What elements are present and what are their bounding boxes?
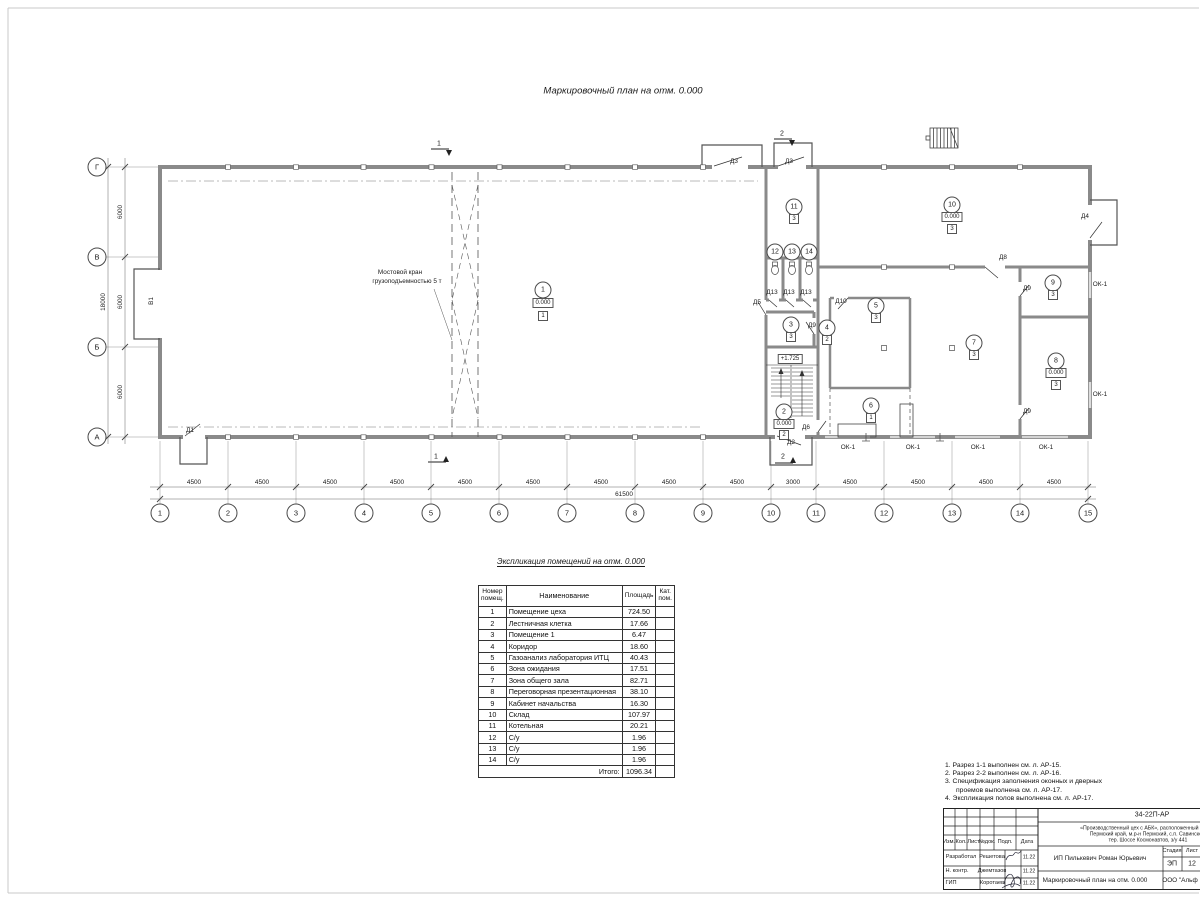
grid-axis-bubble: 2 (219, 504, 238, 523)
floor-type-mark: 1 (538, 311, 548, 321)
org-name: ООО "Альф (1162, 878, 1198, 884)
stamp-col-header: Лист (967, 840, 979, 846)
stamp-name: Решетова (979, 855, 1005, 861)
door-label: Д9 (1023, 286, 1031, 292)
doc-title: Маркировочный план на отм. 0.000 (1043, 878, 1148, 884)
stamp-col-header: Кол. (955, 840, 966, 846)
schedule-row: 6Зона ожидания17.51 (479, 663, 675, 674)
grid-axis-bubble: 1 (151, 504, 170, 523)
dim-label: 4500 (594, 480, 608, 486)
sheet-label: Лист (1186, 849, 1198, 855)
door-label: Д2 (787, 440, 795, 446)
room-number-bubble: 9 (1045, 275, 1062, 292)
grid-axis-bubble: 9 (694, 504, 713, 523)
dim-label: 4500 (187, 480, 201, 486)
schedule-total-row: Итого:1096.34 (479, 766, 675, 777)
schedule-row: 1Помещение цеха724.50 (479, 607, 675, 618)
dim-label: 4500 (458, 480, 472, 486)
note-line: проемов выполнена см. л. АР-17. (945, 787, 1180, 795)
schedule-row: 8Переговорная презентационная38.10 (479, 686, 675, 697)
grid-axis-bubble: А (88, 428, 107, 447)
stamp-role: ГИП (945, 881, 956, 887)
room-elevation: 0.000 (1045, 368, 1066, 378)
dim-label: 4500 (979, 480, 993, 486)
grid-axis-bubble: 8 (626, 504, 645, 523)
section-marks (428, 139, 796, 463)
stage-label: Стадия (1162, 849, 1181, 855)
schedule-row: 4Коридор18.60 (479, 641, 675, 652)
floor-type-mark: 3 (871, 313, 881, 323)
section-mark-label: 1 (434, 454, 438, 461)
room-number-bubble: 2 (776, 404, 793, 421)
crane-label: Мостовой кран (378, 270, 422, 276)
note-line: 2. Разрез 2-2 выполнен см. л. АР-16. (945, 770, 1180, 778)
room-elevation: 0.000 (532, 298, 553, 308)
grid-axis-bubble: 7 (558, 504, 577, 523)
room-number-bubble: 5 (868, 298, 885, 315)
stamp-name: Джемтазов (978, 869, 1007, 875)
ladder-symbol (926, 128, 958, 148)
door-label: Д10 (835, 299, 846, 305)
dim-total-label: 18000 (101, 293, 107, 311)
window-label: ОК-1 (1039, 445, 1053, 451)
grid-axis-bubble: Б (88, 338, 107, 357)
project-desc: тер. Шоссе Космонавтов, з/у 441 (1109, 838, 1188, 843)
schedule-row: 3Помещение 16.47 (479, 629, 675, 640)
door-label: Д3 (730, 159, 738, 165)
stamp-role: Н. контр. (945, 869, 968, 875)
section-mark-label: 2 (781, 454, 785, 461)
note-line: 4. Экспликация полов выполнена см. л. АР… (945, 795, 1180, 803)
stamp-date: 11.22 (1023, 881, 1036, 886)
stamp-date: 11.22 (1023, 855, 1036, 860)
window-label: ОК-1 (1093, 282, 1107, 288)
drawing-sheet: Маркировочный план на отм. 0.000 Эксплик… (0, 0, 1200, 900)
schedule-row: 10Склад107.97 (479, 709, 675, 720)
section-mark-label: 1 (437, 141, 441, 148)
door-label: Д9 (808, 323, 816, 329)
gate-label: В1 (149, 297, 155, 305)
room-elevation: 0.000 (941, 212, 962, 222)
stamp-col-header: Подп. (998, 840, 1013, 846)
window-label: ОК-1 (1093, 392, 1107, 398)
columns (226, 165, 1023, 440)
client-name: ИП Пилькевич Роман Юрьевич (1054, 856, 1147, 862)
dim-label: 4500 (662, 480, 676, 486)
room-number-bubble: 4 (819, 320, 836, 337)
stair-level-mark: +1.725 (778, 354, 803, 364)
dim-label: 6000 (118, 295, 124, 309)
door-label: Д13 (766, 290, 777, 296)
dim-label: 4500 (526, 480, 540, 486)
door-label: Д8 (999, 255, 1007, 261)
grid-axis-bubble: Г (88, 158, 107, 177)
grid-axis-bubble: 15 (1079, 504, 1098, 523)
schedule-title: Экспликация помещений на отм. 0.000 (497, 558, 645, 566)
sheet-value: 12 (1188, 861, 1196, 868)
crane-runway (434, 172, 478, 437)
room-number-bubble: 3 (783, 317, 800, 334)
schedule-header: Наименование (506, 586, 622, 607)
floor-type-mark: 3 (789, 214, 799, 224)
floor-type-mark: 3 (786, 332, 796, 342)
note-line: 1. Разрез 1-1 выполнен см. л. АР-15. (945, 762, 1180, 770)
dim-label: 6000 (118, 205, 124, 219)
dim-label: 6000 (118, 385, 124, 399)
floor-type-mark: 3 (1051, 380, 1061, 390)
stage-value: ЭП (1167, 861, 1177, 868)
schedule-row: 2Лестничная клетка17.66 (479, 618, 675, 629)
floor-type-mark: 2 (822, 335, 832, 345)
stamp-col-header: №док. (979, 840, 995, 846)
dim-label: 4500 (1047, 480, 1061, 486)
window-label: ОК-1 (841, 445, 855, 451)
dim-label: 4500 (390, 480, 404, 486)
door-label: Д1 (186, 428, 194, 434)
plan-title: Маркировочный план на отм. 0.000 (543, 86, 702, 96)
room-schedule-table: Номер помещ. Наименование Площадь Кат. п… (478, 585, 675, 778)
dim-label: 3000 (786, 480, 800, 486)
porches (134, 143, 1117, 465)
schedule-header: Кат. пом. (656, 586, 675, 607)
grid-axis-bubble: 13 (943, 504, 962, 523)
room-elevation: 0.000 (773, 419, 794, 429)
floor-type-mark: 1 (866, 413, 876, 423)
notes: 1. Разрез 1-1 выполнен см. л. АР-15. 2. … (945, 762, 1180, 803)
floor-type-mark: 3 (969, 350, 979, 360)
stamp-col-header: Изм. (943, 840, 955, 846)
room-number-bubble: 11 (786, 199, 803, 216)
floor-type-mark: 3 (947, 224, 957, 234)
toilet-icons (765, 261, 825, 277)
room-number-bubble: 14 (801, 244, 818, 261)
door-label: Д3 (785, 159, 793, 165)
room-number-bubble: 7 (966, 335, 983, 352)
floor-type-mark: 3 (1048, 290, 1058, 300)
grid-axis-bubble: 14 (1011, 504, 1030, 523)
grid-axis-bubble: 3 (287, 504, 306, 523)
grid-axis-bubble: 11 (807, 504, 826, 523)
room-number-bubble: 1 (535, 282, 552, 299)
grid-axis-bubble: 12 (875, 504, 894, 523)
dim-label: 4500 (730, 480, 744, 486)
door-label: Д6 (802, 425, 810, 431)
stamp-name: Коротаев (980, 881, 1004, 887)
dim-label: 4500 (323, 480, 337, 486)
room-number-bubble: 13 (784, 244, 801, 261)
room-number-bubble: 6 (863, 398, 880, 415)
door-label: Д5 (753, 300, 761, 306)
stamp-col-header: Дата (1021, 840, 1033, 846)
room-number-bubble: 12 (767, 244, 784, 261)
door-label: Д9 (1023, 409, 1031, 415)
section-mark-label: 2 (780, 131, 784, 138)
note-line: 3. Спецификация заполнения оконных и две… (945, 778, 1180, 786)
stamp-role: Разработал (946, 855, 976, 861)
schedule-row: 12С/у1.96 (479, 732, 675, 743)
door-leaves (185, 157, 1102, 445)
schedule-row: 9Кабинет начальства16.30 (479, 698, 675, 709)
room-number-bubble: 10 (944, 197, 961, 214)
schedule-row: 5Газоанализ лаборатория ИТЦ40.43 (479, 652, 675, 663)
window-label: ОК-1 (971, 445, 985, 451)
project-code: 34-22П-АР (1135, 812, 1170, 819)
grid-axis-bubble: 5 (422, 504, 441, 523)
door-label: Д4 (1081, 214, 1089, 220)
schedule-row: 13С/у1.96 (479, 743, 675, 754)
door-label: Д13 (783, 290, 794, 296)
schedule-row: 7Зона общего зала82.71 (479, 675, 675, 686)
dim-label: 4500 (255, 480, 269, 486)
crane-label: грузоподъемностью 5 т (372, 279, 441, 285)
dim-total-label: 61500 (615, 492, 633, 498)
door-label: Д13 (800, 290, 811, 296)
grid-axis-bubble: В (88, 248, 107, 267)
room-number-bubble: 8 (1048, 353, 1065, 370)
dim-label: 4500 (843, 480, 857, 486)
schedule-row: 11Котельная20.21 (479, 720, 675, 731)
dim-label: 4500 (911, 480, 925, 486)
window-label: ОК-1 (906, 445, 920, 451)
grid-axis-bubble: 4 (355, 504, 374, 523)
hall-axis-lines (168, 181, 758, 427)
schedule-header: Площадь (622, 586, 656, 607)
schedule-row: 14С/у1.96 (479, 755, 675, 766)
stamp-date: 11.22 (1023, 869, 1036, 874)
internal-walls (766, 167, 1090, 437)
schedule-header: Номер помещ. (479, 586, 507, 607)
grid-axis-bubble: 6 (490, 504, 509, 523)
grid-axis-bubble: 10 (762, 504, 781, 523)
